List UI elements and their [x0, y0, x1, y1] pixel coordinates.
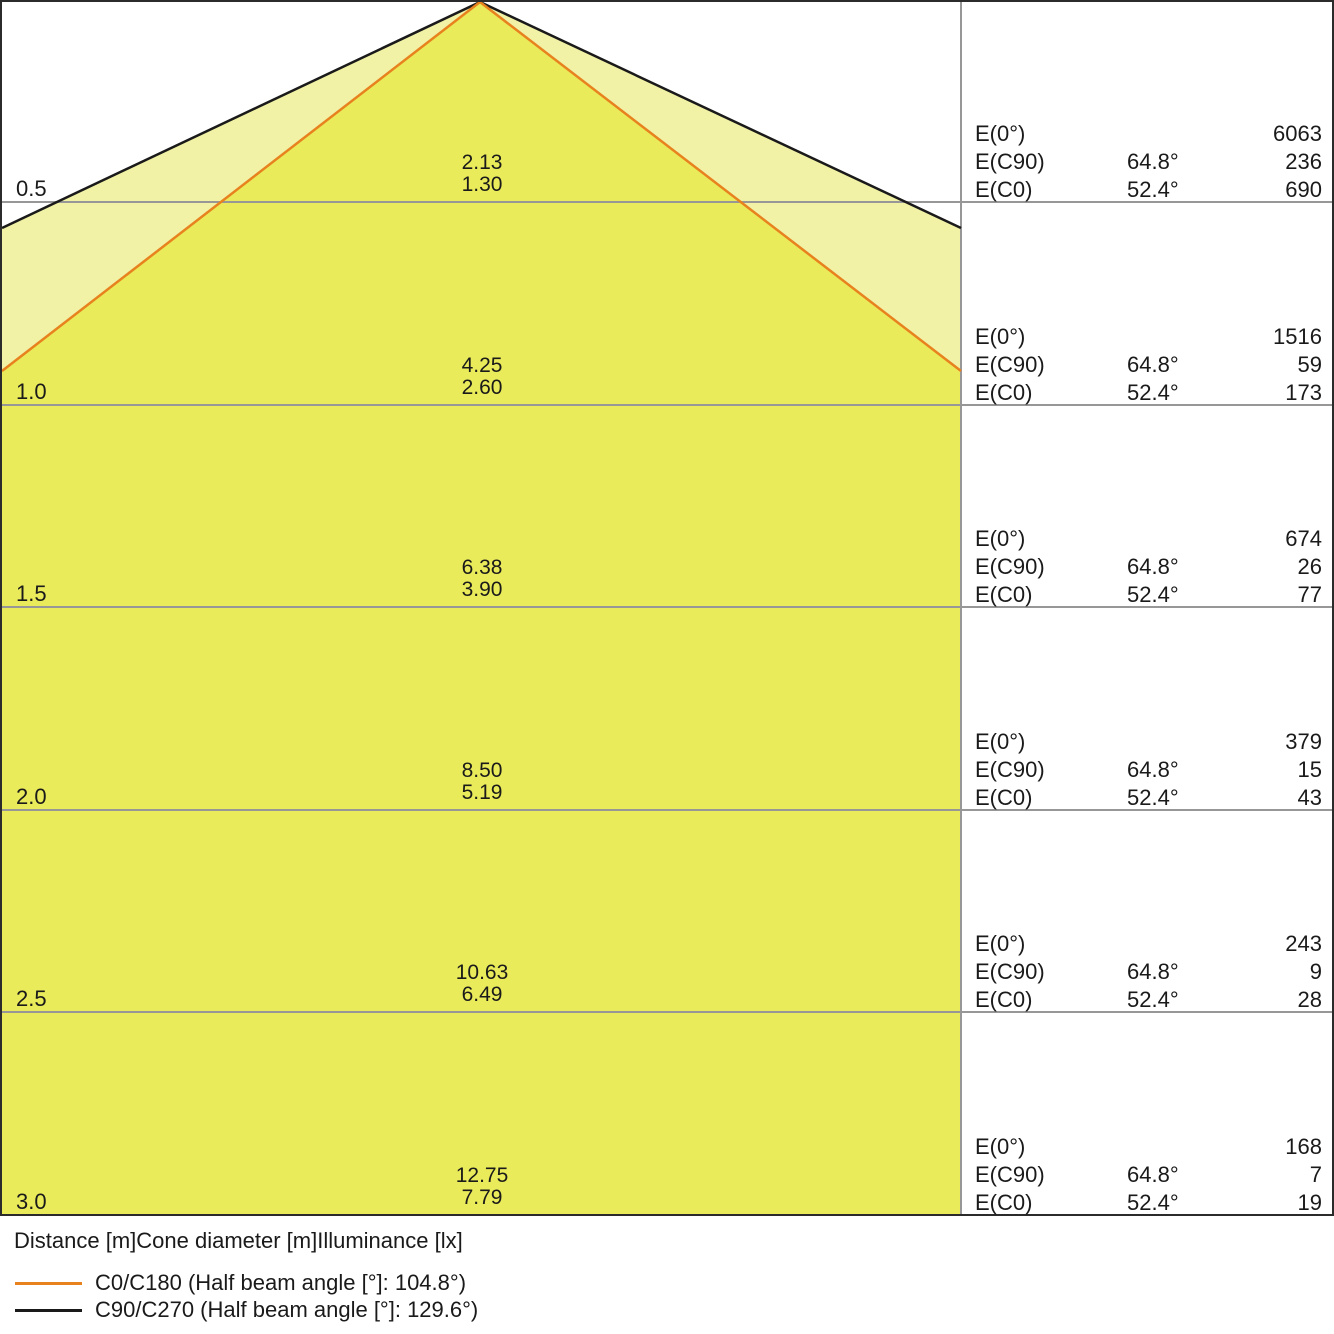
ec0-label: E(C0)	[975, 986, 1032, 1014]
e0-line: E(0°) 1516	[975, 323, 1322, 351]
distance-label: 2.0	[16, 784, 47, 810]
ec90-line: E(C90) 64.8° 59	[975, 351, 1322, 379]
ec90-angle: 64.8°	[1127, 1161, 1179, 1189]
illuminance-block: E(0°) 674 E(C90) 64.8° 26 E(C0) 52.4° 77	[975, 525, 1322, 609]
cone-diameter-values: 10.63 6.49	[332, 962, 632, 1006]
illuminance-block: E(0°) 1516 E(C90) 64.8° 59 E(C0) 52.4° 1…	[975, 323, 1322, 407]
legend-label-c0: C0/C180 (Half beam angle [°]: 104.8°)	[95, 1270, 466, 1296]
distance-label: 0.5	[16, 176, 47, 202]
ec0-value: 690	[1285, 176, 1322, 204]
ec90-value: 7	[1310, 1161, 1322, 1189]
ec0-line: E(C0) 52.4° 173	[975, 379, 1322, 407]
e0-value: 674	[1285, 525, 1322, 553]
light-cone-diagram: 0.5 2.13 1.30 E(0°) 6063 E(C90) 64.8° 23…	[0, 0, 1334, 1334]
legend-item-c90: C90/C270 (Half beam angle [°]: 129.6°)	[15, 1297, 478, 1323]
e0-value: 6063	[1273, 120, 1322, 148]
ec0-line: E(C0) 52.4° 19	[975, 1189, 1322, 1217]
ec90-angle: 64.8°	[1127, 958, 1179, 986]
cone-diameter-c90: 8.50	[332, 760, 632, 782]
c90-line-swatch-icon	[15, 1308, 82, 1313]
ec90-value: 9	[1310, 958, 1322, 986]
ec90-angle: 64.8°	[1127, 351, 1179, 379]
cone-diameter-c90: 2.13	[332, 152, 632, 174]
ec90-value: 26	[1298, 553, 1322, 581]
distance-label: 1.0	[16, 379, 47, 405]
ec90-angle: 64.8°	[1127, 756, 1179, 784]
illuminance-block: E(0°) 379 E(C90) 64.8° 15 E(C0) 52.4° 43	[975, 728, 1322, 812]
distance-label: 1.5	[16, 581, 47, 607]
cone-diameter-c0: 3.90	[332, 579, 632, 601]
ec0-value: 43	[1298, 784, 1322, 812]
ec90-angle: 64.8°	[1127, 553, 1179, 581]
ec0-line: E(C0) 52.4° 43	[975, 784, 1322, 812]
cone-diameter-values: 12.75 7.79	[332, 1165, 632, 1209]
ec0-label: E(C0)	[975, 379, 1032, 407]
e0-line: E(0°) 674	[975, 525, 1322, 553]
e0-label: E(0°)	[975, 728, 1025, 756]
ec0-angle: 52.4°	[1127, 176, 1179, 204]
ec90-line: E(C90) 64.8° 15	[975, 756, 1322, 784]
ec0-value: 19	[1298, 1189, 1322, 1217]
ec0-angle: 52.4°	[1127, 581, 1179, 609]
ec90-label: E(C90)	[975, 1161, 1045, 1189]
ec0-line: E(C0) 52.4° 28	[975, 986, 1322, 1014]
ec90-line: E(C90) 64.8° 26	[975, 553, 1322, 581]
e0-value: 243	[1285, 930, 1322, 958]
ec90-line: E(C90) 64.8° 236	[975, 148, 1322, 176]
ec0-angle: 52.4°	[1127, 784, 1179, 812]
ec0-label: E(C0)	[975, 1189, 1032, 1217]
cone-diameter-values: 6.38 3.90	[332, 557, 632, 601]
ec90-line: E(C90) 64.8° 7	[975, 1161, 1322, 1189]
ec90-label: E(C90)	[975, 553, 1045, 581]
legend-item-c0: C0/C180 (Half beam angle [°]: 104.8°)	[15, 1270, 466, 1296]
cone-diameter-c0: 2.60	[332, 377, 632, 399]
ec90-value: 15	[1298, 756, 1322, 784]
ec0-value: 28	[1298, 986, 1322, 1014]
ec0-angle: 52.4°	[1127, 986, 1179, 1014]
ec90-label: E(C90)	[975, 756, 1045, 784]
ec0-angle: 52.4°	[1127, 1189, 1179, 1217]
ec90-line: E(C90) 64.8° 9	[975, 958, 1322, 986]
ec90-label: E(C90)	[975, 351, 1045, 379]
ec0-angle: 52.4°	[1127, 379, 1179, 407]
cone-diameter-c90: 12.75	[332, 1165, 632, 1187]
e0-label: E(0°)	[975, 120, 1025, 148]
e0-label: E(0°)	[975, 525, 1025, 553]
c0-line-swatch-icon	[15, 1281, 82, 1286]
e0-line: E(0°) 6063	[975, 120, 1322, 148]
cone-diameter-values: 4.25 2.60	[332, 355, 632, 399]
cone-diameter-c90: 4.25	[332, 355, 632, 377]
ec0-label: E(C0)	[975, 581, 1032, 609]
e0-line: E(0°) 243	[975, 930, 1322, 958]
cone-diameter-c0: 1.30	[332, 174, 632, 196]
ec90-label: E(C90)	[975, 958, 1045, 986]
cone-diameter-c0: 5.19	[332, 782, 632, 804]
cone-diameter-values: 8.50 5.19	[332, 760, 632, 804]
diagram-frame: 0.5 2.13 1.30 E(0°) 6063 E(C90) 64.8° 23…	[0, 0, 1334, 1216]
ec0-value: 77	[1298, 581, 1322, 609]
ec90-value: 59	[1298, 351, 1322, 379]
cone-diameter-c90: 10.63	[332, 962, 632, 984]
e0-value: 168	[1285, 1133, 1322, 1161]
legend-label-c90: C90/C270 (Half beam angle [°]: 129.6°)	[95, 1297, 478, 1323]
illuminance-block: E(0°) 243 E(C90) 64.8° 9 E(C0) 52.4° 28	[975, 930, 1322, 1014]
cone-diameter-c90: 6.38	[332, 557, 632, 579]
ec0-value: 173	[1285, 379, 1322, 407]
illuminance-block: E(0°) 6063 E(C90) 64.8° 236 E(C0) 52.4° …	[975, 120, 1322, 204]
ec90-value: 236	[1285, 148, 1322, 176]
e0-value: 379	[1285, 728, 1322, 756]
ec0-label: E(C0)	[975, 176, 1032, 204]
ec90-label: E(C90)	[975, 148, 1045, 176]
ec0-label: E(C0)	[975, 784, 1032, 812]
ec0-line: E(C0) 52.4° 77	[975, 581, 1322, 609]
e0-line: E(0°) 379	[975, 728, 1322, 756]
e0-label: E(0°)	[975, 1133, 1025, 1161]
cone-diameter-c0: 6.49	[332, 984, 632, 1006]
distance-label: 3.0	[16, 1189, 47, 1215]
axis-caption: Distance [m]Cone diameter [m]Illuminance…	[14, 1228, 463, 1254]
distance-label: 2.5	[16, 986, 47, 1012]
e0-line: E(0°) 168	[975, 1133, 1322, 1161]
e0-label: E(0°)	[975, 323, 1025, 351]
illuminance-block: E(0°) 168 E(C90) 64.8° 7 E(C0) 52.4° 19	[975, 1133, 1322, 1217]
e0-label: E(0°)	[975, 930, 1025, 958]
cone-diameter-c0: 7.79	[332, 1187, 632, 1209]
ec0-line: E(C0) 52.4° 690	[975, 176, 1322, 204]
e0-value: 1516	[1273, 323, 1322, 351]
ec90-angle: 64.8°	[1127, 148, 1179, 176]
cone-diameter-values: 2.13 1.30	[332, 152, 632, 196]
